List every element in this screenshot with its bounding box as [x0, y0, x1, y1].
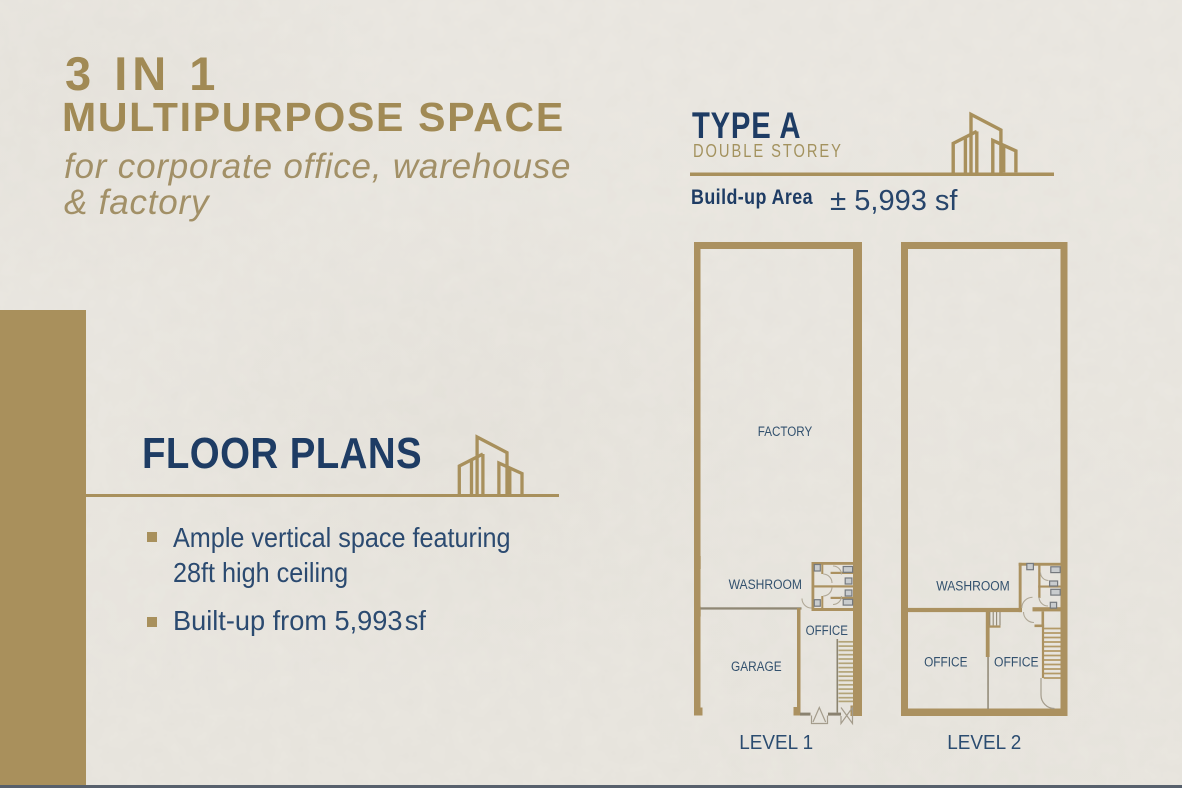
svg-text:WASHROOM: WASHROOM [936, 579, 1010, 595]
svg-text:LEVEL 2: LEVEL 2 [947, 731, 1021, 754]
svg-text:LEVEL 1: LEVEL 1 [739, 731, 813, 754]
svg-text:FACTORY: FACTORY [758, 424, 813, 440]
svg-text:OFFICE: OFFICE [994, 655, 1039, 671]
svg-text:OFFICE: OFFICE [806, 623, 848, 639]
svg-text:OFFICE: OFFICE [924, 655, 967, 671]
svg-text:GARAGE: GARAGE [731, 659, 782, 675]
svg-text:WASHROOM: WASHROOM [729, 577, 802, 593]
